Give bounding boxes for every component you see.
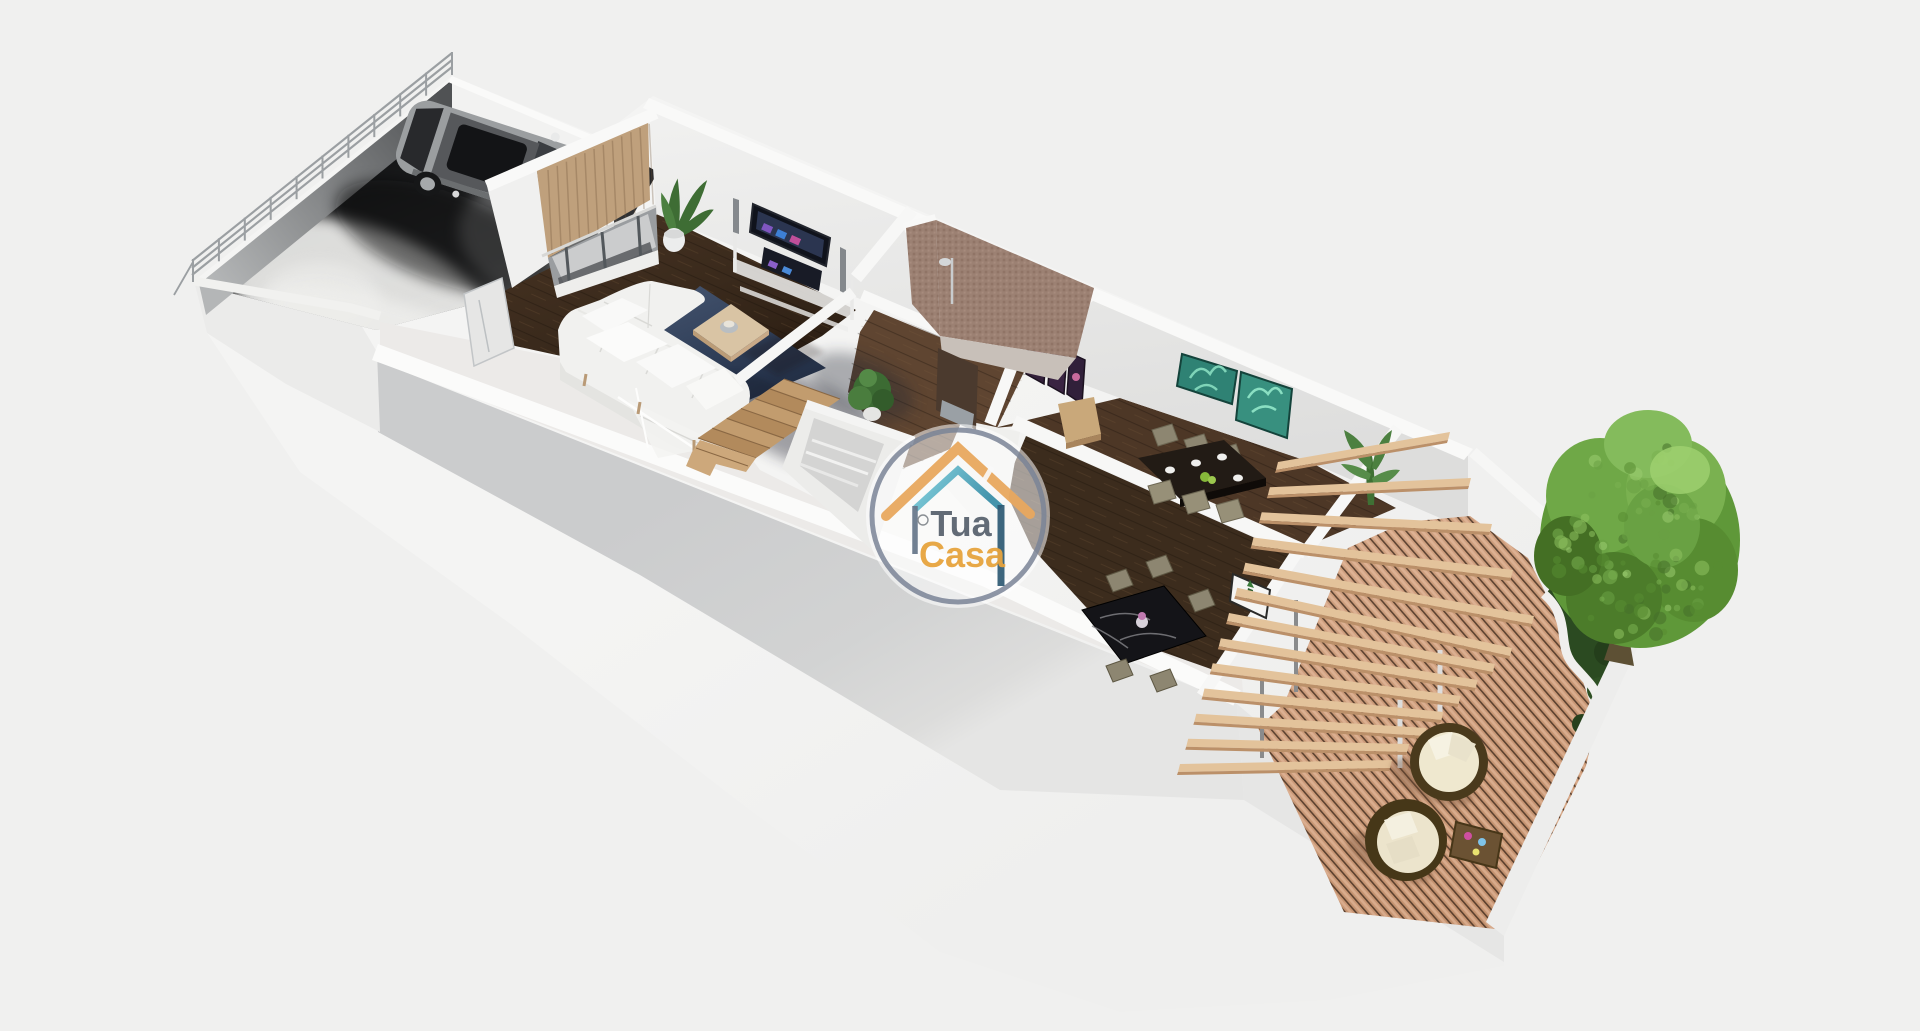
- svg-text:Casa: Casa: [919, 534, 1006, 575]
